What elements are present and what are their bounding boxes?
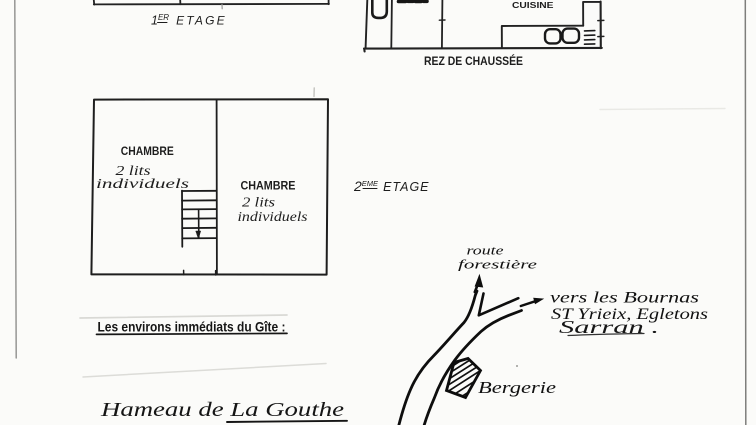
svg-text:CUISINE: CUISINE	[512, 0, 554, 10]
svg-text:2EMEETAGE: 2EMEETAGE	[353, 178, 430, 194]
svg-text:CHAMBRE: CHAMBRE	[121, 144, 174, 158]
svg-text:CHAMBRE: CHAMBRE	[241, 179, 296, 193]
svg-text:REZ DE CHAUSSÉE: REZ DE CHAUSSÉE	[424, 53, 523, 68]
svg-text:individuels: individuels	[96, 177, 190, 192]
svg-text:Hameau de La Gouthe: Hameau de La Gouthe	[100, 399, 345, 421]
svg-text:route: route	[467, 243, 504, 258]
svg-text:Bergerie: Bergerie	[478, 378, 557, 397]
svg-text:Les environs immédiats du Gîte: Les environs immédiats du Gîte :	[98, 320, 286, 335]
svg-text:2 lits: 2 lits	[242, 196, 276, 211]
svg-text:individuels: individuels	[238, 210, 309, 225]
svg-text:forestière: forestière	[458, 257, 537, 272]
svg-text:vers les Bournas: vers les Bournas	[550, 290, 699, 307]
svg-text:1ERETAGE: 1ERETAGE	[151, 13, 227, 28]
